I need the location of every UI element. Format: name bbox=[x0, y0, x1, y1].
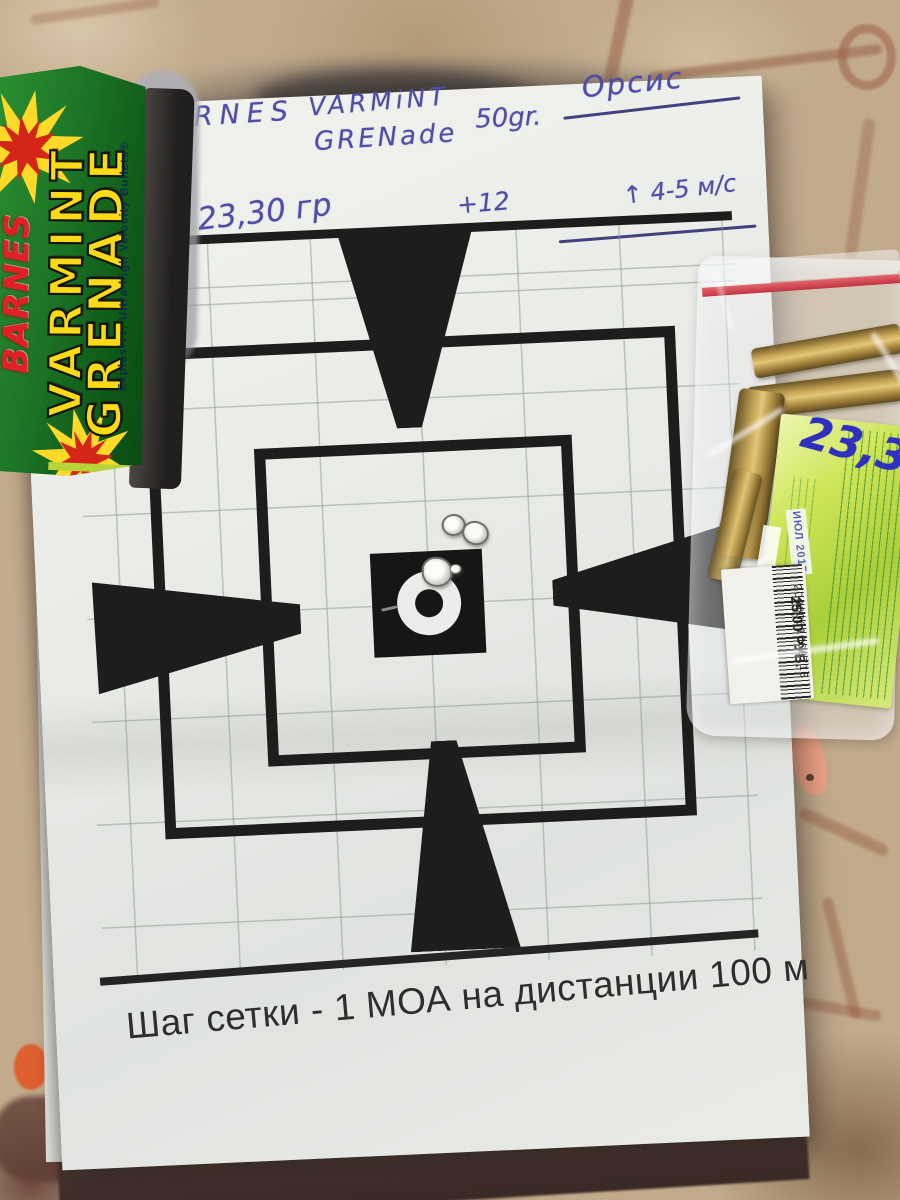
bullseye-dot bbox=[414, 589, 443, 618]
orange-floor-spot bbox=[14, 1044, 48, 1090]
spot-dark-dot bbox=[806, 774, 814, 781]
ammo-box-face: BARNES VARMINT GRENADE Explosive, Ultra-… bbox=[0, 65, 146, 476]
handwriting-bullet-weight: 50gr. bbox=[475, 102, 542, 135]
floor-stone-ring bbox=[838, 24, 896, 90]
photo-stage: BARNES VARMiNT GRENade 50gr. Орсис 23,30… bbox=[0, 0, 900, 1200]
price-label: 2000061062713 25,00 РУБ. bbox=[721, 564, 814, 705]
box-brand-text: BARNES bbox=[0, 188, 36, 398]
handwriting-model-line2: GRENade bbox=[313, 118, 458, 157]
handwriting-wind: ↑ 4-5 м/с bbox=[621, 169, 737, 210]
ammo-box: BARNES VARMINT GRENADE Explosive, Ultra-… bbox=[0, 57, 206, 485]
box-tagline: Explosive, Ultra-high Velocity Bullets® bbox=[115, 116, 134, 416]
handwriting-correction: +12 bbox=[456, 186, 511, 219]
